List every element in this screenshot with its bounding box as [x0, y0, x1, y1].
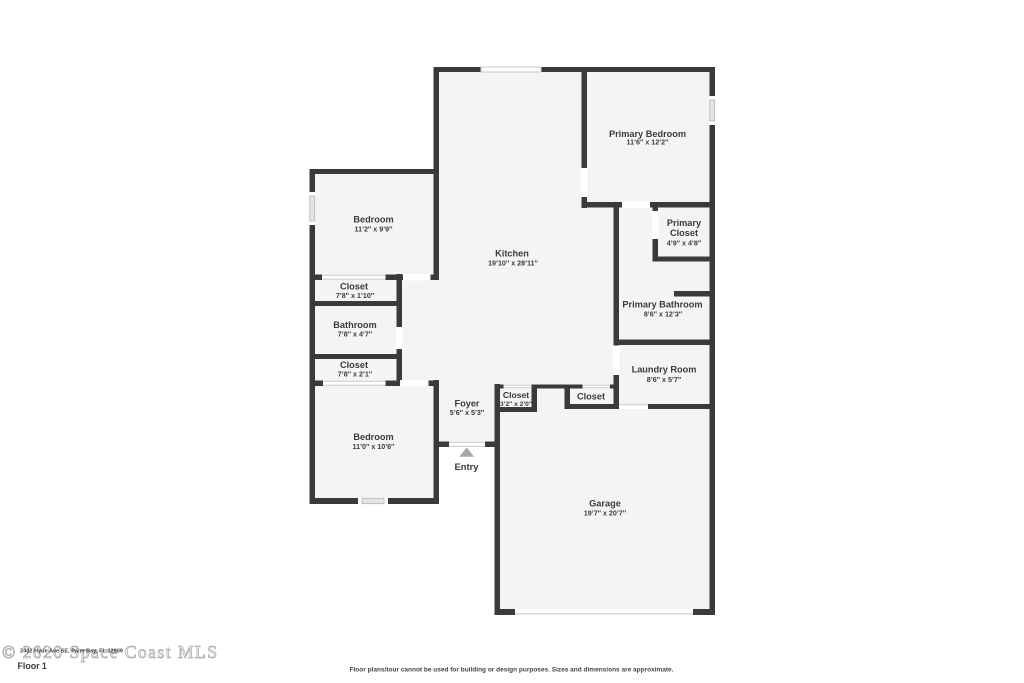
svg-text:7’8″ x 4’7″: 7’8″ x 4’7″: [338, 331, 373, 339]
svg-text:11’2″ x 9’9″: 11’2″ x 9’9″: [355, 226, 394, 234]
svg-text:Floor 1: Floor 1: [18, 661, 47, 671]
svg-text:7’8″ x 2’1″: 7’8″ x 2’1″: [338, 371, 373, 379]
svg-text:Foyer: Foyer: [454, 399, 479, 409]
svg-text:Primary: Primary: [667, 218, 702, 228]
svg-text:Closet: Closet: [670, 228, 698, 238]
svg-text:Primary Bathroom: Primary Bathroom: [622, 300, 702, 310]
svg-text:Floor plans/tour cannot be use: Floor plans/tour cannot be used for buil…: [350, 667, 674, 674]
svg-text:Garage: Garage: [589, 499, 621, 509]
svg-text:8’6″ x 5’7″: 8’6″ x 5’7″: [647, 376, 682, 384]
svg-text:Kitchen: Kitchen: [495, 249, 529, 259]
svg-text:7’8″ x 1’10″: 7’8″ x 1’10″: [336, 292, 375, 300]
svg-text:Bathroom: Bathroom: [333, 320, 376, 330]
svg-text:11’0″ x 10’6″: 11’0″ x 10’6″: [353, 443, 396, 451]
svg-text:11’6″ x 12’2″: 11’6″ x 12’2″: [627, 139, 670, 147]
svg-text:19’10″ x 28’11″: 19’10″ x 28’11″: [488, 260, 538, 268]
svg-text:Primary Bedroom: Primary Bedroom: [609, 129, 686, 139]
svg-text:Bedroom: Bedroom: [353, 215, 393, 225]
svg-text:4’9″ x 4’8″: 4’9″ x 4’8″: [667, 240, 702, 248]
svg-text:Closet: Closet: [340, 282, 368, 292]
svg-text:Closet: Closet: [577, 392, 605, 402]
svg-text:5’6″ x 5’3″: 5’6″ x 5’3″: [450, 409, 485, 417]
svg-text:8’6″ x 12’3″: 8’6″ x 12’3″: [644, 311, 683, 319]
svg-text:Entry: Entry: [455, 461, 480, 472]
svg-text:Bedroom: Bedroom: [353, 432, 393, 442]
svg-text:Laundry Room: Laundry Room: [632, 365, 697, 375]
svg-text:Closet: Closet: [503, 390, 529, 400]
svg-text:2402 Hyde Ave SE, Palm Bay, FL: 2402 Hyde Ave SE, Palm Bay, FL 32909: [20, 649, 123, 655]
svg-text:19’7″ x 20’7″: 19’7″ x 20’7″: [584, 510, 627, 518]
svg-text:Closet: Closet: [340, 360, 368, 370]
svg-text:3’2″ x 2’0″: 3’2″ x 2’0″: [500, 401, 533, 408]
